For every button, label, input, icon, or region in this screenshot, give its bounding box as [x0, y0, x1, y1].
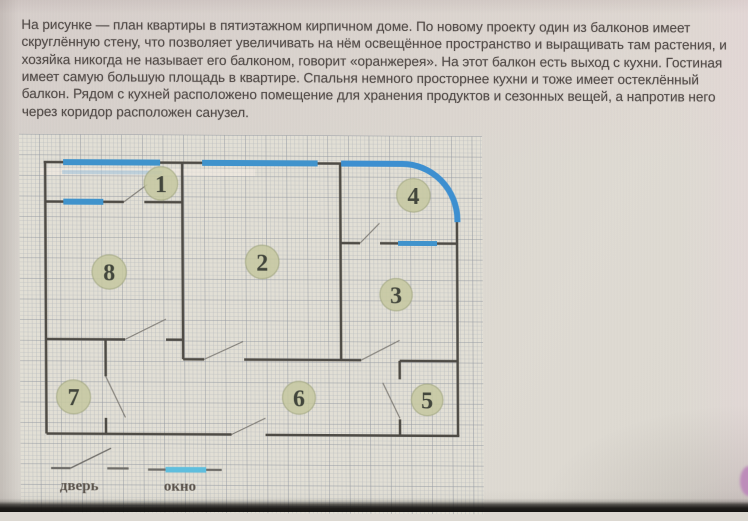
svg-text:2: 2	[256, 250, 268, 276]
svg-text:4: 4	[407, 184, 419, 210]
svg-text:3: 3	[390, 283, 402, 309]
svg-text:7: 7	[67, 385, 79, 411]
svg-text:6: 6	[293, 386, 305, 412]
svg-text:8: 8	[103, 260, 115, 286]
svg-text:1: 1	[155, 172, 167, 198]
svg-text:5: 5	[421, 388, 433, 414]
